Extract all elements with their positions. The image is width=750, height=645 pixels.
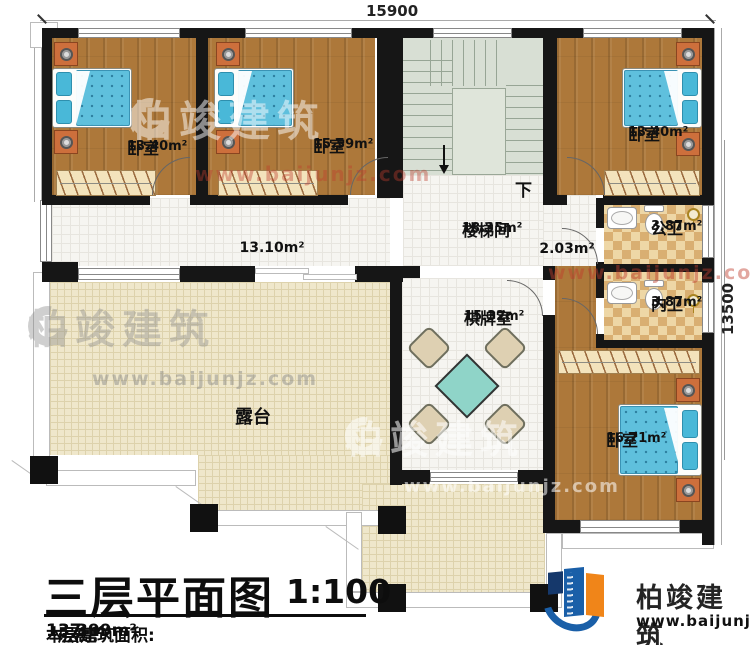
pillow: [56, 100, 72, 124]
watermark-url: www.baijunjz.com: [548, 262, 750, 284]
nightstand: [676, 378, 700, 402]
lamp-icon: [222, 136, 235, 149]
logo-building-blue: [564, 567, 584, 617]
terrace-column-3: [378, 506, 406, 534]
sink-icon: [607, 282, 637, 304]
pillow: [56, 72, 72, 96]
sink-icon: [607, 207, 637, 229]
window-bedroom2: [245, 28, 352, 38]
wall: [702, 333, 714, 545]
sliding-door-terrace: [303, 274, 357, 280]
watermark-url: www.baijunjz.com: [195, 162, 431, 186]
nightstand: [676, 42, 700, 66]
corridor-floor: [52, 198, 390, 266]
wall: [42, 195, 150, 205]
wall: [680, 520, 714, 533]
floor-plan: 下: [0, 0, 750, 645]
toilet-icon: [644, 205, 664, 212]
pillow: [682, 442, 698, 470]
room-label-hall: 2.03m²: [539, 241, 594, 257]
wall: [42, 262, 78, 282]
basin-icon: [611, 211, 633, 225]
window-public-bath: [702, 205, 714, 258]
wall: [390, 266, 402, 485]
wall: [42, 28, 52, 200]
wall: [543, 520, 580, 533]
lamp-icon: [60, 48, 73, 61]
sheet-fold: [664, 71, 678, 125]
window-bedroom4: [580, 520, 680, 533]
window-private-bath: [702, 282, 714, 333]
nightstand: [54, 130, 78, 154]
wardrobe: [604, 170, 700, 196]
logo-building-dark: [548, 571, 563, 595]
lamp-icon: [682, 484, 695, 497]
wall: [603, 195, 714, 205]
watermark-url: www.baijunjz.com: [404, 476, 620, 497]
pillow: [682, 72, 698, 96]
window-bedroom1: [78, 28, 180, 38]
plan-scale: 1:100: [286, 572, 391, 611]
terrace-column-1: [30, 456, 58, 484]
lamp-icon: [60, 136, 73, 149]
lamp-icon: [682, 48, 695, 61]
terrace-railing-step: [46, 470, 196, 486]
basin-icon: [611, 286, 633, 300]
logo-company-name: 柏竣建筑: [636, 576, 750, 645]
stairs-direction-arrow: [443, 145, 445, 167]
window-bedroom3: [583, 28, 682, 38]
logo-mark: [538, 562, 630, 638]
sheet-fold: [76, 71, 90, 125]
height-value: 3.3m: [58, 621, 106, 641]
bedroom4-eave-band: [562, 533, 714, 549]
wall: [180, 266, 255, 282]
terrace-railing-left: [33, 272, 50, 462]
sliding-door-terrace: [255, 268, 309, 274]
nightstand: [216, 42, 240, 66]
wall: [543, 28, 557, 195]
floor-area-line: 本层建筑面积: 137.99m² 层高: 3.3m: [46, 621, 58, 641]
wall: [596, 340, 714, 348]
pillow: [218, 100, 234, 124]
wall: [190, 195, 348, 205]
nightstand: [676, 478, 700, 502]
wardrobe: [558, 350, 700, 374]
pillow: [682, 100, 698, 124]
title-underline: [44, 614, 366, 617]
lamp-icon: [682, 384, 695, 397]
window-corridor-left: [40, 200, 52, 262]
stairs-down-label: 下: [515, 176, 532, 201]
nightstand: [54, 42, 78, 66]
window-stairwell: [433, 28, 512, 38]
watermark-url: www.baijunjz.com: [92, 368, 318, 390]
logo-website: www.baijunjz.com: [636, 612, 750, 630]
stairs-right-flight: [506, 85, 543, 175]
dimension-top: 15900: [366, 2, 418, 20]
lamp-icon: [222, 48, 235, 61]
stairs-landing: [452, 88, 506, 175]
dimension-right: 13500: [719, 283, 737, 335]
pillow: [682, 410, 698, 438]
logo-building-orange: [586, 573, 604, 617]
wardrobe: [56, 170, 156, 196]
wall: [543, 195, 567, 205]
terrace-column-2: [190, 504, 218, 532]
room-label-corridor: 13.10m²: [239, 240, 304, 256]
wall: [180, 28, 245, 38]
pillow: [218, 72, 234, 96]
sheet-fold: [238, 71, 252, 125]
wall: [702, 28, 714, 205]
window-corridor-bottom: [78, 268, 180, 280]
wall: [596, 198, 604, 228]
left-sill-band: [34, 28, 42, 202]
down-arrow-icon: [439, 165, 449, 174]
nightstand: [216, 130, 240, 154]
